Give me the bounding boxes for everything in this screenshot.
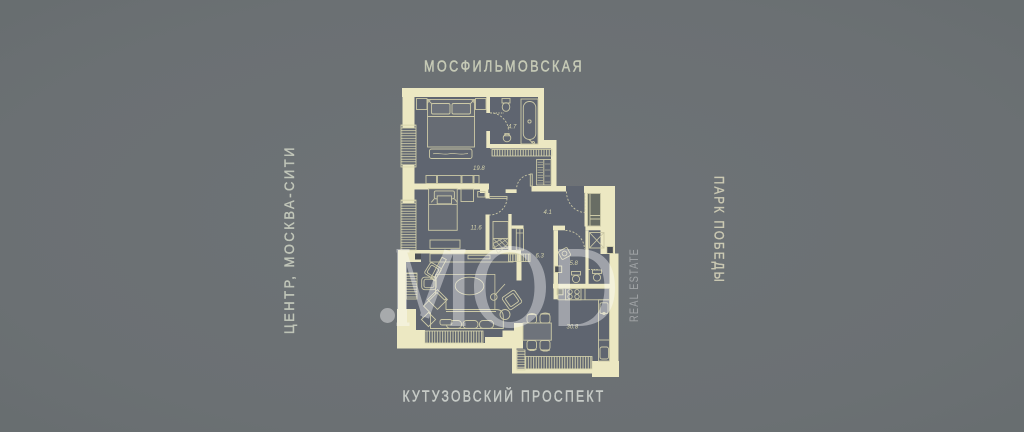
svg-text:4.7: 4.7 bbox=[508, 125, 517, 131]
svg-text:REAL ESTATE: REAL ESTATE bbox=[627, 248, 641, 322]
svg-text:19.8: 19.8 bbox=[473, 166, 485, 172]
svg-text:МОСФИЛЬМОВСКАЯ: МОСФИЛЬМОВСКАЯ bbox=[424, 59, 584, 76]
svg-text:КУТУЗОВСКИЙ ПРОСПЕКТ: КУТУЗОВСКИЙ ПРОСПЕКТ bbox=[403, 387, 606, 406]
svg-text:ЦЕНТР, МОСКВА-СИТИ: ЦЕНТР, МОСКВА-СИТИ bbox=[282, 145, 297, 334]
svg-text:5.8: 5.8 bbox=[570, 261, 579, 267]
svg-text:4.1: 4.1 bbox=[544, 210, 552, 216]
svg-text:11.6: 11.6 bbox=[471, 226, 483, 232]
svg-text:ПАРК ПОБЕДЫ: ПАРК ПОБЕДЫ bbox=[712, 176, 727, 284]
